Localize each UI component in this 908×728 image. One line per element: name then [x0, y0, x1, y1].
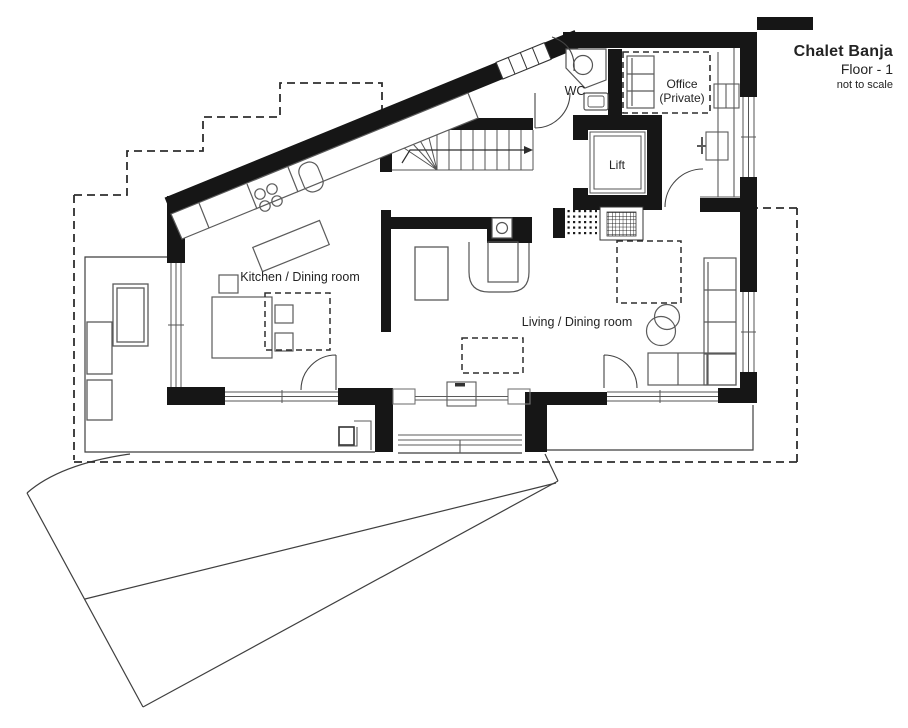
room-label-kitchen: Kitchen / Dining room	[240, 270, 360, 284]
lift-lobby-mats	[565, 207, 643, 240]
desk-chair	[697, 137, 706, 154]
lift-shaft: Lift	[571, 115, 662, 210]
room-label-office-2: (Private)	[659, 91, 704, 105]
terrace-deck-edges	[85, 257, 753, 453]
entry-steps	[398, 435, 522, 453]
hall-table	[415, 247, 448, 300]
room-label-living: Living / Dining room	[522, 315, 632, 329]
driveway-road	[27, 454, 558, 707]
dining-set	[212, 275, 293, 358]
window-east-lower	[741, 292, 756, 372]
room-label-office-1: Office	[666, 77, 697, 91]
dining-chair	[275, 333, 293, 351]
porch-column	[339, 427, 354, 445]
window-east-upper	[741, 97, 756, 177]
window-south-west	[225, 390, 338, 403]
dining-chair	[275, 305, 293, 323]
title-block: Chalet Banja Floor - 1 not to scale	[794, 43, 894, 91]
east-nook	[697, 48, 740, 197]
room-label-wc: WC	[565, 84, 586, 98]
room-label-lift: Lift	[609, 158, 626, 172]
entrance-glazing-diagonal	[496, 43, 551, 79]
coffee-table	[647, 317, 676, 346]
desk	[706, 132, 728, 160]
living-room-furniture	[647, 258, 737, 385]
deck-furniture	[87, 284, 148, 420]
dining-table	[212, 297, 272, 358]
corner-sofa-horizontal	[648, 353, 736, 385]
wc-door	[535, 93, 570, 128]
lobby-door	[665, 169, 703, 207]
living-terrace-door	[604, 355, 637, 388]
scale-note: not to scale	[837, 79, 893, 91]
floor-label: Floor - 1	[841, 61, 893, 77]
office-daybed	[627, 56, 654, 108]
wc-fixtures	[566, 49, 608, 110]
floor-plan-sheet: Lift WC Office (Private)	[0, 0, 908, 728]
living-dashed-zone-south	[462, 338, 523, 373]
window-south-east	[607, 390, 718, 403]
living-dashed-zone	[617, 241, 681, 303]
project-title: Chalet Banja	[794, 43, 893, 60]
window-west	[168, 263, 184, 387]
dining-chair	[219, 275, 238, 293]
kitchen-island	[253, 220, 329, 271]
kitchen-terrace-door	[301, 355, 336, 390]
office-zone: Office (Private)	[623, 52, 710, 113]
